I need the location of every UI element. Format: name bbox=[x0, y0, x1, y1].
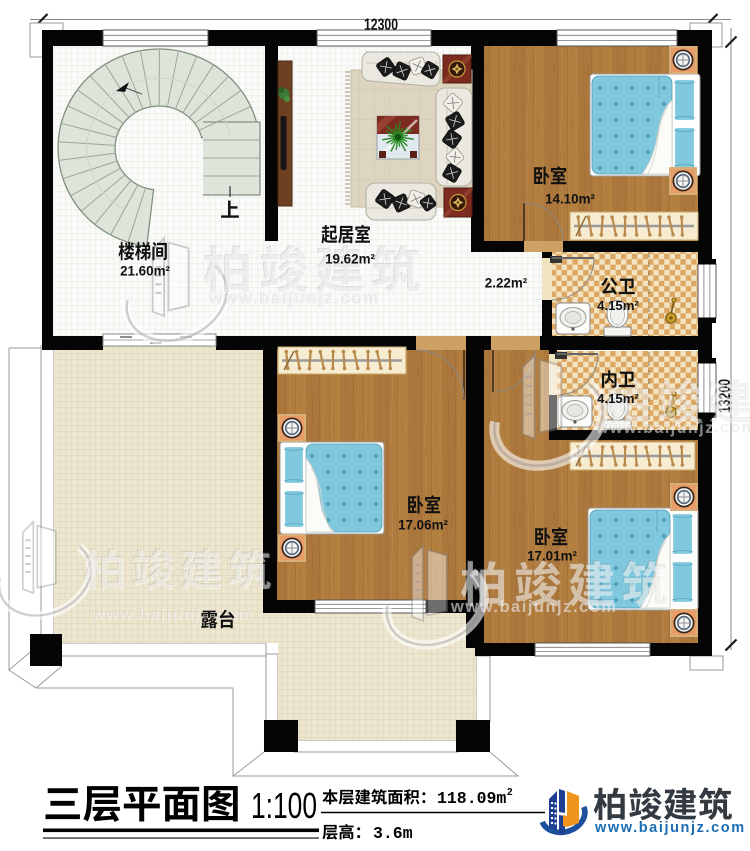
svg-text:4.15m²: 4.15m² bbox=[597, 298, 639, 313]
svg-text:17.06m²: 17.06m² bbox=[398, 518, 448, 533]
svg-text:17.01m²: 17.01m² bbox=[527, 549, 577, 564]
svg-text:118.09m: 118.09m bbox=[437, 789, 506, 808]
svg-text:2: 2 bbox=[507, 787, 513, 798]
svg-text:4.15m²: 4.15m² bbox=[597, 391, 639, 406]
svg-text:2.22m²: 2.22m² bbox=[485, 276, 528, 291]
svg-text:www.baijunjz.com: www.baijunjz.com bbox=[209, 289, 381, 308]
svg-text:3.6m: 3.6m bbox=[373, 824, 413, 843]
svg-text:14.10m²: 14.10m² bbox=[545, 192, 595, 207]
svg-text:19.62m²: 19.62m² bbox=[325, 252, 375, 267]
svg-text:www.baijunjz.com: www.baijunjz.com bbox=[594, 820, 746, 836]
svg-text:www.baijunjz.com: www.baijunjz.com bbox=[595, 420, 750, 437]
svg-text:www.baijunjz.com: www.baijunjz.com bbox=[450, 598, 617, 616]
svg-text:1:100: 1:100 bbox=[251, 785, 317, 826]
svg-text:21.60m²: 21.60m² bbox=[120, 264, 170, 279]
